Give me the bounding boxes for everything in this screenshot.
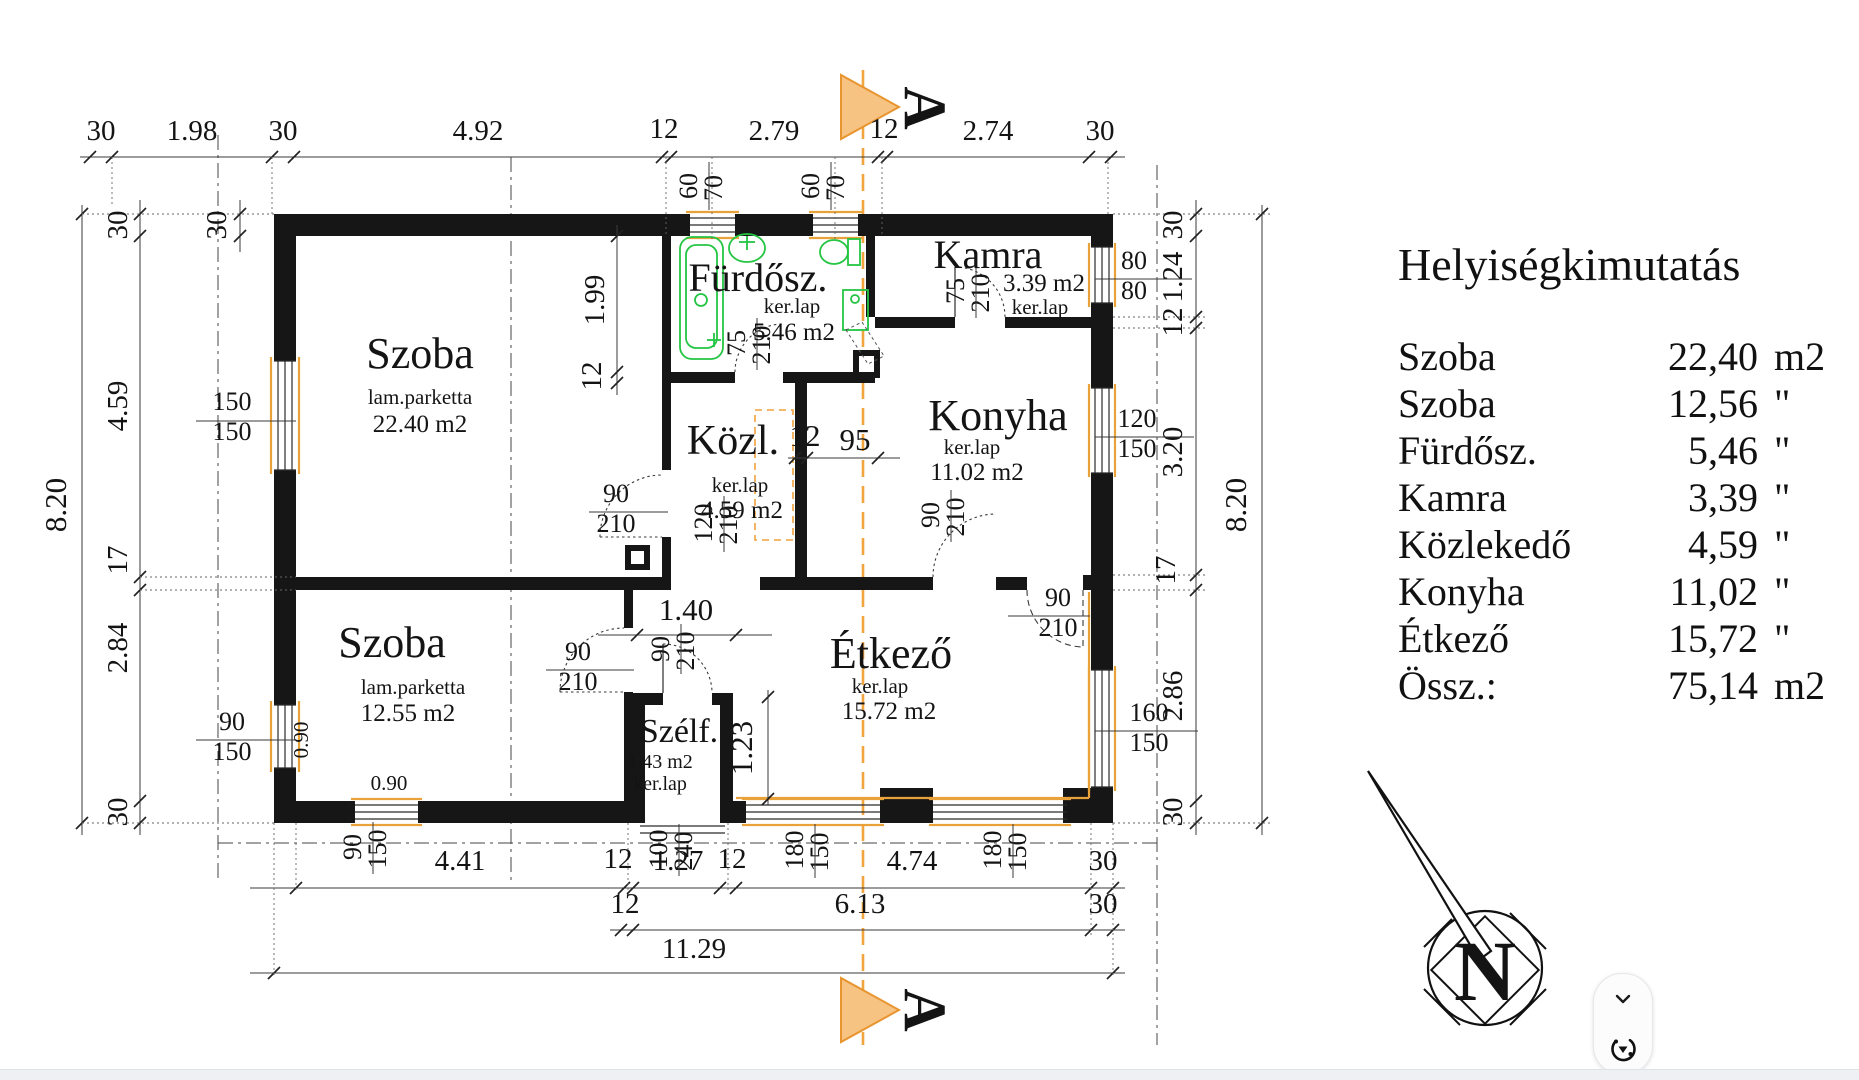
dim: 2.74 [963, 115, 1014, 147]
dim: 12 [611, 888, 640, 920]
window-label: 150 [363, 830, 392, 869]
dim: 8.20 [38, 478, 73, 532]
window-label: 80 [1121, 276, 1147, 305]
window-label: 150 [1118, 434, 1157, 463]
room-floor: lam.parketta [361, 675, 466, 699]
bottom-edge-bar [0, 1069, 1859, 1080]
room-floor: ker.lap [764, 294, 821, 318]
dim: 30 [102, 211, 134, 240]
room-schedule: Helyiségkimutatás Szoba22,40m2 Szoba12,5… [1398, 238, 1858, 709]
window-label: 150 [213, 387, 252, 416]
dim: 2.79 [749, 115, 800, 147]
dim: 8.20 [1218, 478, 1253, 532]
compass-north-letter: N [1454, 923, 1516, 1019]
window-label: 150 [1003, 833, 1032, 872]
dim: 1.99 [579, 275, 611, 326]
floorplan-viewer: A A [0, 0, 1859, 1080]
dim: 12 [576, 362, 608, 391]
room-name: Szoba [366, 329, 474, 378]
window-label: 70 [821, 175, 850, 201]
door-label: 210 [559, 667, 598, 696]
chevron-down-icon [1610, 986, 1636, 1012]
window-label: 150 [805, 833, 834, 872]
room-area: 3.39 m2 [1003, 270, 1085, 297]
room-floor: ker.lap [944, 435, 1001, 459]
schedule-row: Fürdősz.5,46" [1398, 427, 1858, 474]
dim: 1.98 [167, 115, 218, 147]
dim: 30 [1089, 845, 1118, 877]
dim: 30 [102, 798, 134, 827]
room-floor: ker.lap [852, 674, 909, 698]
dim: 6.13 [835, 888, 886, 920]
section-triangle-bottom [841, 978, 899, 1042]
collapse-button[interactable] [1603, 979, 1643, 1019]
dim: 95 [840, 422, 871, 457]
dim: 12 [1157, 308, 1189, 337]
rotate-button[interactable] [1603, 1029, 1643, 1069]
door-label: 210 [966, 274, 995, 313]
schedule-row: Szoba22,40m2 [1398, 333, 1858, 380]
dim: 2.84 [102, 622, 134, 673]
dim: 12 [650, 113, 679, 145]
dim: 12 [790, 418, 821, 453]
section-letter-top: A [892, 86, 958, 129]
dim: 30 [1157, 798, 1189, 827]
dim: 30 [1089, 888, 1118, 920]
room-area: 4.59 m2 [701, 497, 783, 524]
window-label: 70 [699, 175, 728, 201]
window-label: 160 [1130, 698, 1169, 727]
room-floor: ker.lap [633, 773, 687, 795]
room-name: Szélf. [640, 713, 718, 750]
dim: 0.90 [371, 771, 408, 795]
window-label: 150 [1130, 728, 1169, 757]
room-area: 5.46 m2 [753, 319, 835, 346]
dim: 4.59 [102, 381, 134, 432]
dim: 1.24 [1157, 251, 1189, 302]
dim: 12 [604, 843, 633, 875]
dim: 30 [201, 211, 233, 240]
dim: 4.92 [453, 115, 504, 147]
window-label: 150 [213, 737, 252, 766]
dim: 1.40 [659, 592, 713, 627]
door-label: 210 [597, 509, 636, 538]
schedule-row: Szoba12,56" [1398, 380, 1858, 427]
dim: 30 [87, 115, 116, 147]
dim: 17 [1150, 556, 1182, 585]
viewer-controls [1593, 973, 1653, 1075]
schedule-row: Kamra3,39" [1398, 474, 1858, 521]
room-area: 22.40 m2 [373, 411, 467, 438]
room-name: Konyha [928, 391, 1067, 440]
door-label: 240 [669, 832, 698, 871]
dim: 30 [1157, 211, 1189, 240]
room-area: 15.72 m2 [842, 698, 936, 725]
dim: 4.41 [435, 845, 486, 877]
door-label: 210 [941, 498, 970, 537]
room-area: 11.02 m2 [930, 459, 1024, 486]
room-area: 12.55 m2 [361, 700, 455, 727]
dim: 1.23 [724, 721, 759, 775]
schedule-row: Közlekedő4,59" [1398, 521, 1858, 568]
dim: 17 [102, 546, 134, 575]
window-label: 90 [219, 707, 245, 736]
door-label: 90 [565, 637, 591, 666]
room-floor: ker.lap [1012, 295, 1069, 319]
window-label: 120 [1118, 404, 1157, 433]
room-name: Szoba [338, 618, 446, 667]
dim: 12 [870, 113, 899, 145]
dim: 30 [1086, 115, 1115, 147]
north-compass: N [1368, 771, 1546, 1025]
rotate-icon [1608, 1034, 1638, 1064]
room-area: 1.43 m2 [627, 751, 693, 773]
schedule-row: Össz.:75,14m2 [1398, 662, 1858, 709]
dim: 3.20 [1157, 427, 1189, 478]
section-letter-bottom: A [892, 988, 958, 1031]
room-floor: lam.parketta [368, 385, 473, 409]
window-label: 80 [1121, 246, 1147, 275]
room-name: Közl. [687, 418, 779, 464]
room-labels: Szoba lam.parketta 22.40 m2 Fürdősz. ker… [338, 232, 1085, 795]
dim: 30 [269, 115, 298, 147]
door-label: 210 [1039, 613, 1078, 642]
door-label: 210 [671, 632, 700, 671]
room-floor: ker.lap [712, 473, 769, 497]
schedule-title: Helyiségkimutatás [1398, 238, 1858, 291]
door-label: 90 [1045, 583, 1071, 612]
dim: 12 [718, 843, 747, 875]
dim: 11.29 [662, 933, 726, 965]
dim: 4.74 [887, 845, 938, 877]
schedule-row: Étkező15,72" [1398, 615, 1858, 662]
room-name: Étkező [830, 629, 952, 678]
schedule-row: Konyha11,02" [1398, 568, 1858, 615]
door-label: 90 [603, 479, 629, 508]
